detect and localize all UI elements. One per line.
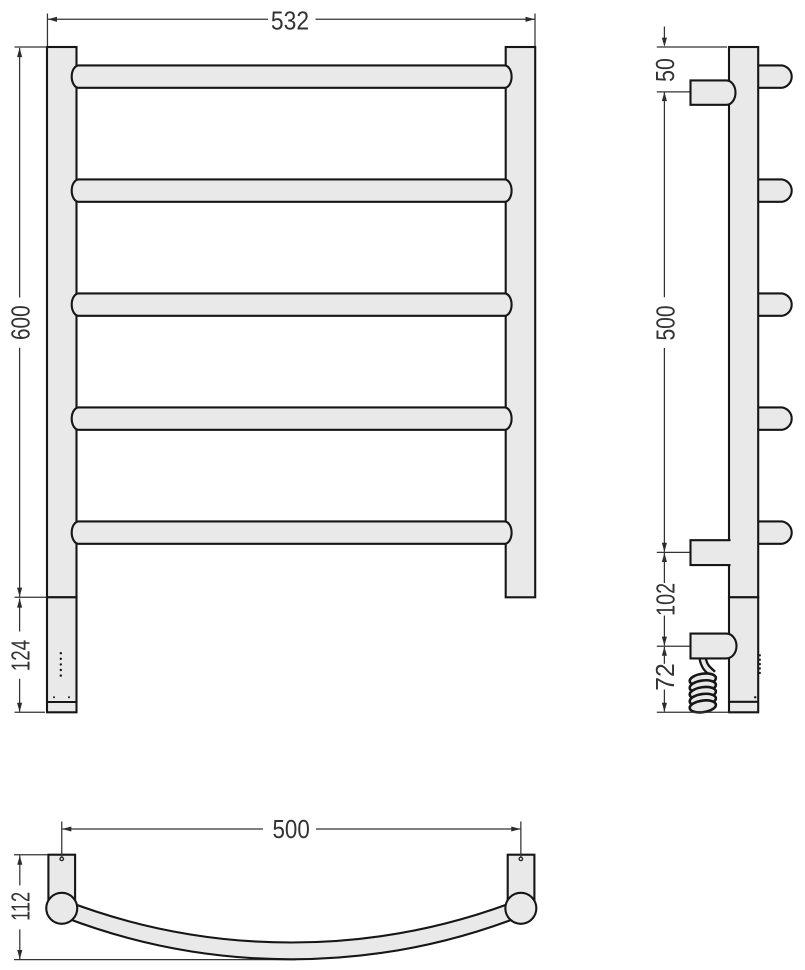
svg-text:50: 50 [651, 58, 681, 82]
svg-text:500: 500 [272, 816, 309, 845]
svg-text:124: 124 [5, 640, 35, 671]
svg-text:112: 112 [6, 892, 35, 921]
svg-text:532: 532 [271, 7, 309, 36]
svg-text:600: 600 [6, 305, 35, 340]
svg-text:500: 500 [652, 305, 681, 340]
svg-text:102: 102 [651, 583, 680, 616]
svg-text:72: 72 [651, 663, 680, 690]
